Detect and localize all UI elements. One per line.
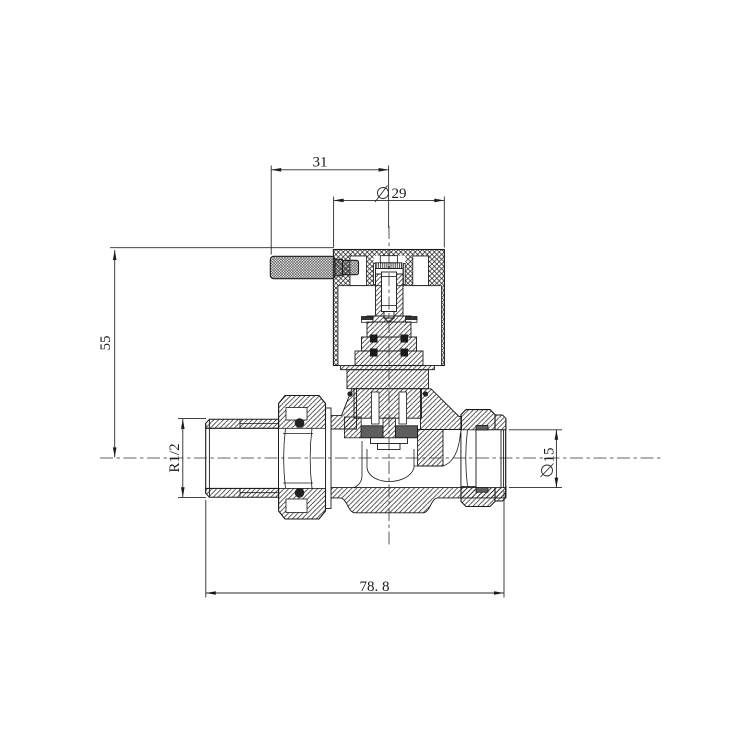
svg-text:29: 29	[392, 186, 407, 202]
svg-text:55: 55	[98, 336, 114, 351]
svg-text:R1/2: R1/2	[167, 443, 183, 472]
svg-text:31: 31	[313, 155, 328, 171]
svg-text:78. 8: 78. 8	[360, 579, 390, 595]
svg-text:15: 15	[542, 448, 558, 463]
